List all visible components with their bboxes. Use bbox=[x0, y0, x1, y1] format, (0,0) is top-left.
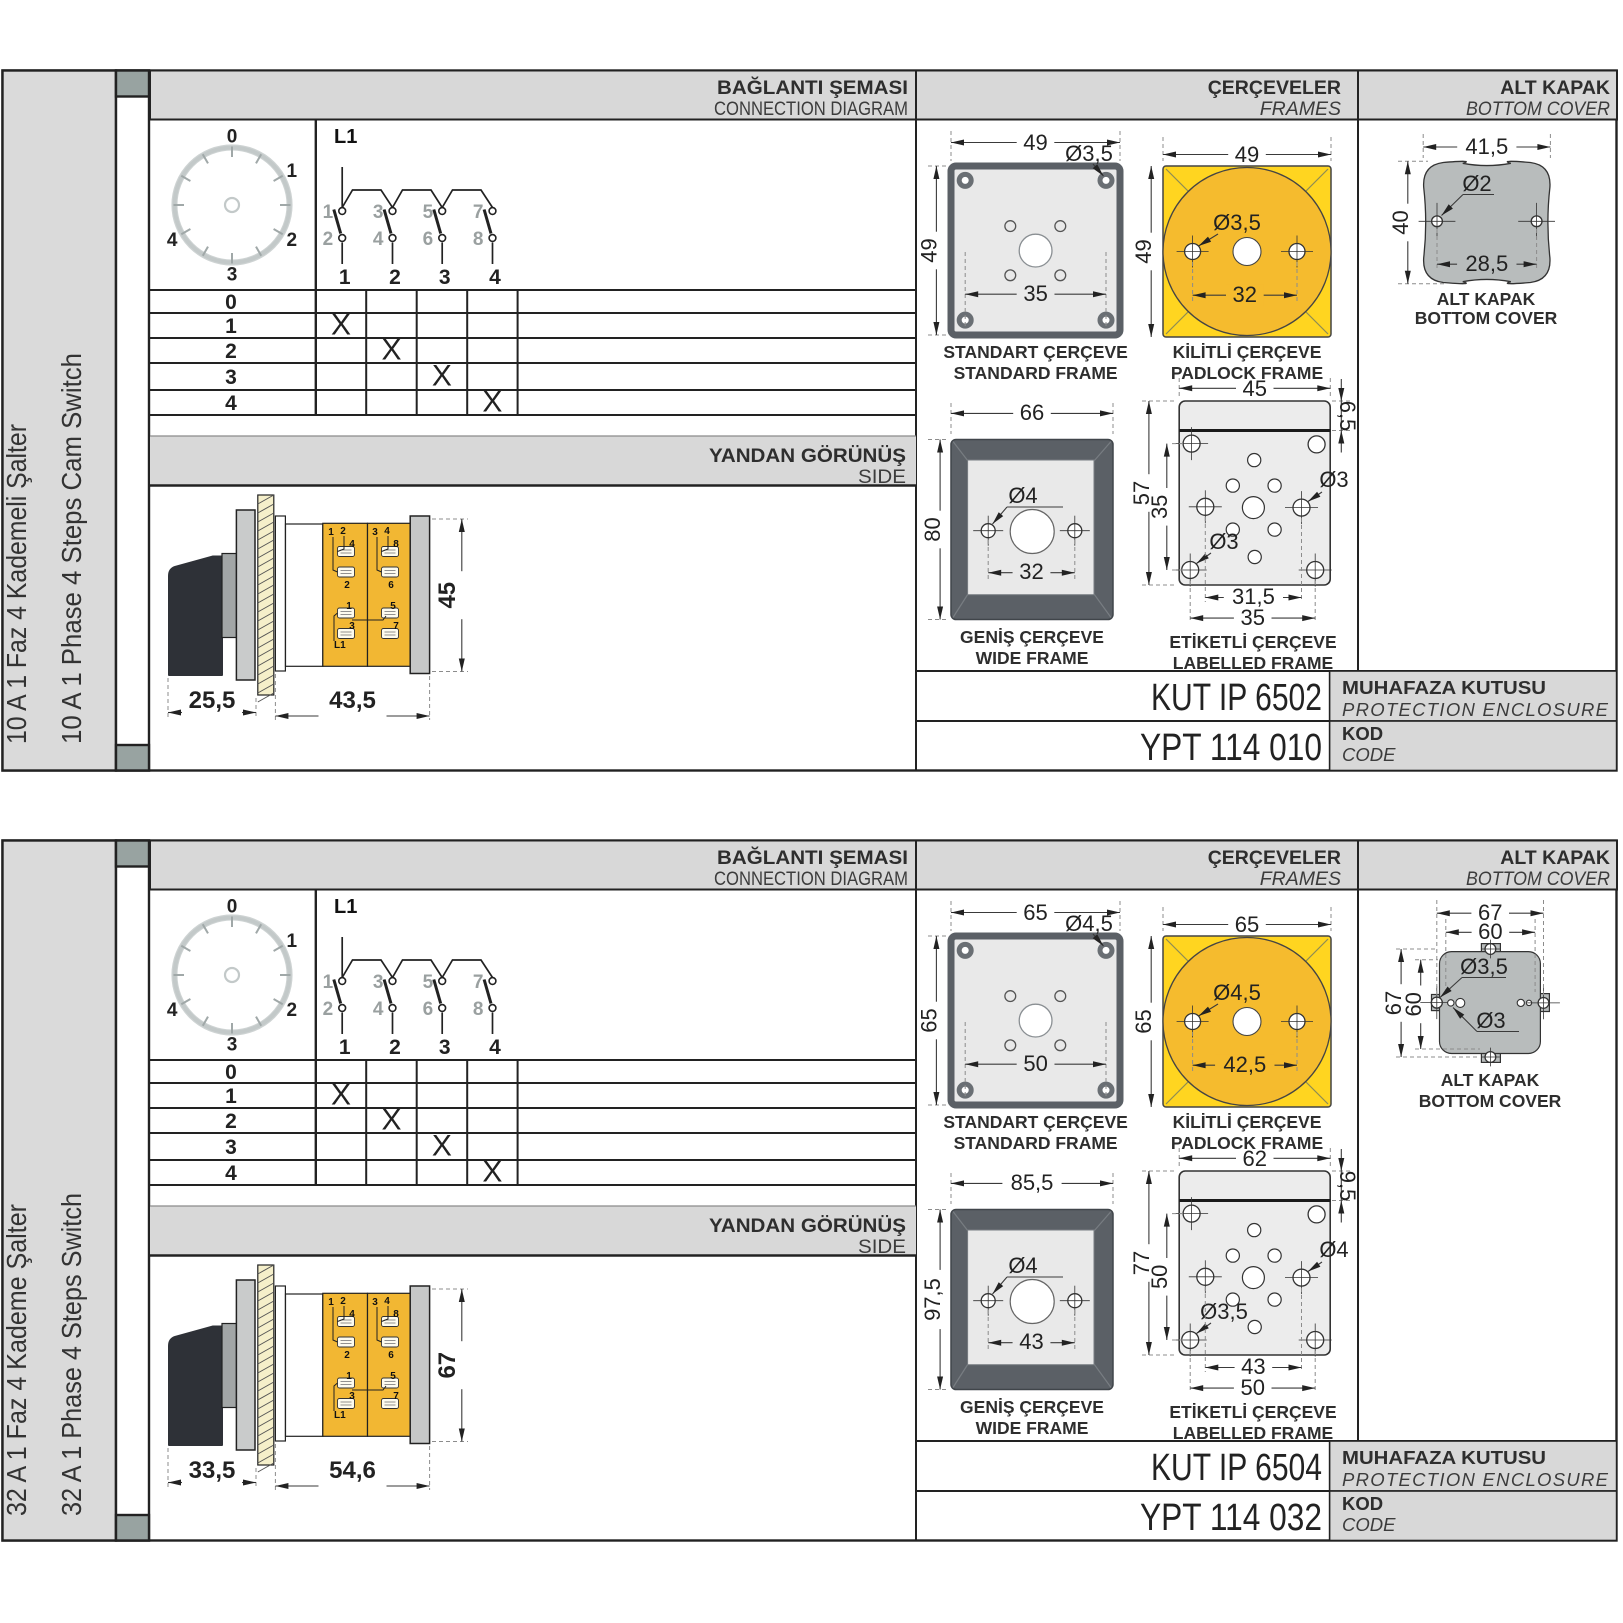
svg-text:1: 1 bbox=[339, 266, 351, 289]
svg-text:ALT KAPAK: ALT KAPAK bbox=[1437, 289, 1536, 309]
svg-text:35: 35 bbox=[1023, 281, 1047, 306]
svg-text:32: 32 bbox=[1233, 282, 1257, 307]
svg-text:6: 6 bbox=[388, 580, 394, 591]
svg-text:32 A 1 Faz 4 Kademe Şalter: 32 A 1 Faz 4 Kademe Şalter bbox=[1, 1204, 32, 1516]
svg-text:4: 4 bbox=[384, 1296, 390, 1307]
svg-text:85,5: 85,5 bbox=[1011, 1170, 1054, 1195]
svg-text:MUHAFAZA KUTUSU: MUHAFAZA KUTUSU bbox=[1342, 1447, 1546, 1468]
svg-text:KOD: KOD bbox=[1342, 723, 1383, 744]
svg-text:4: 4 bbox=[167, 1000, 178, 1021]
svg-text:WIDE FRAME: WIDE FRAME bbox=[976, 1418, 1089, 1438]
svg-text:4: 4 bbox=[349, 539, 355, 550]
svg-text:X: X bbox=[331, 1079, 351, 1112]
svg-text:YPT 114 032: YPT 114 032 bbox=[1140, 1497, 1322, 1539]
svg-text:7: 7 bbox=[473, 972, 484, 993]
svg-text:35: 35 bbox=[1240, 605, 1264, 630]
svg-text:54,6: 54,6 bbox=[329, 1457, 376, 1484]
svg-text:45: 45 bbox=[1243, 376, 1267, 401]
svg-text:2: 2 bbox=[287, 230, 298, 251]
svg-text:STANDARD FRAME: STANDARD FRAME bbox=[954, 1133, 1118, 1153]
svg-text:L1: L1 bbox=[334, 896, 357, 918]
svg-text:3: 3 bbox=[439, 266, 451, 289]
svg-text:4: 4 bbox=[373, 999, 384, 1020]
svg-text:7: 7 bbox=[473, 202, 484, 223]
svg-text:1: 1 bbox=[323, 972, 334, 993]
svg-text:5: 5 bbox=[423, 972, 434, 993]
svg-text:ETİKETLİ ÇERÇEVE: ETİKETLİ ÇERÇEVE bbox=[1169, 1402, 1336, 1422]
svg-text:Ø4,5: Ø4,5 bbox=[1213, 980, 1261, 1005]
svg-text:X: X bbox=[482, 386, 502, 419]
svg-text:4: 4 bbox=[225, 1162, 237, 1185]
svg-text:WIDE FRAME: WIDE FRAME bbox=[976, 648, 1089, 668]
svg-text:5: 5 bbox=[390, 1371, 396, 1382]
svg-text:2: 2 bbox=[340, 526, 346, 537]
svg-text:GENİŞ ÇERÇEVE: GENİŞ ÇERÇEVE bbox=[960, 627, 1104, 647]
svg-text:33,5: 33,5 bbox=[189, 1457, 236, 1484]
svg-text:BOTTOM COVER: BOTTOM COVER bbox=[1415, 308, 1558, 328]
svg-text:X: X bbox=[331, 309, 351, 342]
svg-text:1: 1 bbox=[225, 315, 237, 338]
svg-text:50: 50 bbox=[1240, 1375, 1264, 1400]
svg-text:PROTECTION ENCLOSURE: PROTECTION ENCLOSURE bbox=[1342, 699, 1609, 720]
svg-text:1: 1 bbox=[323, 202, 334, 223]
svg-text:41,5: 41,5 bbox=[1465, 134, 1508, 159]
svg-text:L1: L1 bbox=[334, 640, 346, 651]
svg-text:STANDARD FRAME: STANDARD FRAME bbox=[954, 363, 1118, 383]
svg-text:Ø4: Ø4 bbox=[1319, 1237, 1348, 1262]
svg-text:6,5: 6,5 bbox=[1335, 401, 1360, 432]
svg-text:5: 5 bbox=[423, 202, 434, 223]
svg-text:BOTTOM COVER: BOTTOM COVER bbox=[1466, 98, 1610, 120]
svg-text:25,5: 25,5 bbox=[189, 687, 236, 714]
svg-text:4: 4 bbox=[489, 266, 501, 289]
svg-text:CONNECTION DIAGRAM: CONNECTION DIAGRAM bbox=[714, 868, 908, 890]
svg-text:49: 49 bbox=[1023, 130, 1047, 155]
svg-text:3: 3 bbox=[372, 1297, 378, 1308]
svg-text:4: 4 bbox=[225, 392, 237, 415]
svg-text:KİLİTLİ ÇERÇEVE: KİLİTLİ ÇERÇEVE bbox=[1173, 342, 1322, 362]
svg-text:0: 0 bbox=[225, 291, 237, 314]
svg-text:35: 35 bbox=[1147, 495, 1172, 519]
svg-text:5: 5 bbox=[390, 601, 396, 612]
svg-text:Ø4,5: Ø4,5 bbox=[1065, 911, 1113, 936]
svg-text:3: 3 bbox=[373, 202, 384, 223]
svg-text:0: 0 bbox=[225, 1061, 237, 1084]
svg-text:65: 65 bbox=[1131, 1009, 1156, 1033]
svg-text:3: 3 bbox=[349, 1391, 355, 1402]
svg-text:2: 2 bbox=[344, 1350, 350, 1361]
svg-text:X: X bbox=[482, 1156, 502, 1189]
svg-text:8: 8 bbox=[473, 229, 484, 250]
svg-text:Ø2: Ø2 bbox=[1462, 171, 1491, 196]
svg-text:1: 1 bbox=[328, 527, 334, 538]
svg-text:YANDAN GÖRÜNÜŞ: YANDAN GÖRÜNÜŞ bbox=[709, 1214, 906, 1237]
svg-text:2: 2 bbox=[340, 1296, 346, 1307]
svg-text:60: 60 bbox=[1478, 919, 1502, 944]
svg-text:Ø3,5: Ø3,5 bbox=[1065, 141, 1113, 166]
svg-text:3: 3 bbox=[372, 527, 378, 538]
svg-text:65: 65 bbox=[916, 1008, 941, 1032]
svg-text:MUHAFAZA KUTUSU: MUHAFAZA KUTUSU bbox=[1342, 677, 1546, 698]
svg-text:FRAMES: FRAMES bbox=[1260, 98, 1341, 120]
svg-text:2: 2 bbox=[344, 580, 350, 591]
svg-text:67: 67 bbox=[434, 1352, 461, 1379]
svg-text:49: 49 bbox=[1235, 142, 1259, 167]
svg-text:2: 2 bbox=[287, 1000, 298, 1021]
svg-text:X: X bbox=[381, 334, 401, 367]
svg-text:X: X bbox=[381, 1104, 401, 1137]
svg-text:ALT KAPAK: ALT KAPAK bbox=[1500, 847, 1610, 869]
svg-text:4: 4 bbox=[373, 229, 384, 250]
svg-text:ÇERÇEVELER: ÇERÇEVELER bbox=[1208, 77, 1341, 99]
svg-text:1: 1 bbox=[287, 931, 298, 952]
svg-text:ÇERÇEVELER: ÇERÇEVELER bbox=[1208, 847, 1341, 869]
svg-text:STANDART ÇERÇEVE: STANDART ÇERÇEVE bbox=[943, 342, 1127, 362]
svg-text:KİLİTLİ ÇERÇEVE: KİLİTLİ ÇERÇEVE bbox=[1173, 1112, 1322, 1132]
svg-text:Ø3: Ø3 bbox=[1319, 467, 1348, 492]
svg-text:8: 8 bbox=[393, 539, 399, 550]
svg-text:3: 3 bbox=[439, 1036, 451, 1059]
svg-text:49: 49 bbox=[1131, 239, 1156, 263]
svg-text:1: 1 bbox=[287, 161, 298, 182]
svg-text:32 A 1 Phase 4 Steps Switch: 32 A 1 Phase 4 Steps Switch bbox=[56, 1193, 87, 1516]
svg-text:4: 4 bbox=[489, 1036, 501, 1059]
svg-text:28,5: 28,5 bbox=[1465, 251, 1508, 276]
svg-text:10 A 1 Phase 4 Steps Cam Switc: 10 A 1 Phase 4 Steps Cam Switch bbox=[56, 353, 87, 744]
svg-text:8: 8 bbox=[393, 1309, 399, 1320]
svg-text:L1: L1 bbox=[334, 1410, 346, 1421]
svg-text:6: 6 bbox=[423, 999, 434, 1020]
svg-text:X: X bbox=[432, 1130, 452, 1163]
svg-text:YPT 114 010: YPT 114 010 bbox=[1140, 727, 1322, 769]
svg-text:6: 6 bbox=[388, 1350, 394, 1361]
svg-text:1: 1 bbox=[225, 1085, 237, 1108]
svg-text:9,5: 9,5 bbox=[1335, 1171, 1360, 1202]
svg-text:2: 2 bbox=[323, 229, 334, 250]
svg-text:CODE: CODE bbox=[1342, 1514, 1396, 1535]
svg-text:SIDE: SIDE bbox=[858, 1236, 906, 1258]
svg-text:0: 0 bbox=[227, 127, 238, 148]
svg-text:KUT IP 6504: KUT IP 6504 bbox=[1151, 1447, 1322, 1489]
svg-text:3: 3 bbox=[227, 1035, 238, 1056]
svg-text:4: 4 bbox=[384, 526, 390, 537]
svg-text:7: 7 bbox=[393, 1391, 399, 1402]
svg-text:97,5: 97,5 bbox=[920, 1278, 945, 1321]
svg-text:6: 6 bbox=[423, 229, 434, 250]
svg-text:2: 2 bbox=[225, 340, 237, 363]
svg-text:CODE: CODE bbox=[1342, 744, 1396, 765]
svg-text:FRAMES: FRAMES bbox=[1260, 868, 1341, 890]
svg-text:65: 65 bbox=[1235, 912, 1259, 937]
svg-text:43,5: 43,5 bbox=[329, 687, 376, 714]
svg-text:L1: L1 bbox=[334, 126, 357, 148]
svg-text:3: 3 bbox=[373, 972, 384, 993]
svg-text:GENİŞ ÇERÇEVE: GENİŞ ÇERÇEVE bbox=[960, 1397, 1104, 1417]
svg-text:2: 2 bbox=[389, 1036, 401, 1059]
svg-text:42,5: 42,5 bbox=[1223, 1052, 1266, 1077]
svg-text:Ø3,5: Ø3,5 bbox=[1200, 1299, 1248, 1324]
svg-text:Ø4: Ø4 bbox=[1008, 1253, 1037, 1278]
svg-text:62: 62 bbox=[1243, 1146, 1267, 1171]
svg-text:ALT KAPAK: ALT KAPAK bbox=[1441, 1070, 1540, 1090]
svg-text:3: 3 bbox=[225, 366, 237, 389]
svg-text:50: 50 bbox=[1023, 1051, 1047, 1076]
svg-text:45: 45 bbox=[434, 582, 461, 609]
svg-text:1: 1 bbox=[339, 1036, 351, 1059]
svg-text:BOTTOM COVER: BOTTOM COVER bbox=[1466, 868, 1610, 890]
svg-text:KUT IP 6502: KUT IP 6502 bbox=[1151, 677, 1322, 719]
svg-text:BAĞLANTI ŞEMASI: BAĞLANTI ŞEMASI bbox=[717, 846, 908, 869]
svg-text:Ø3,5: Ø3,5 bbox=[1460, 954, 1508, 979]
svg-text:4: 4 bbox=[349, 1309, 355, 1320]
svg-text:43: 43 bbox=[1019, 1329, 1043, 1354]
svg-text:1: 1 bbox=[346, 1371, 352, 1382]
svg-text:1: 1 bbox=[328, 1297, 334, 1308]
svg-text:SIDE: SIDE bbox=[858, 466, 906, 488]
svg-text:8: 8 bbox=[473, 999, 484, 1020]
svg-text:50: 50 bbox=[1147, 1265, 1172, 1289]
svg-text:60: 60 bbox=[1401, 992, 1426, 1016]
svg-text:40: 40 bbox=[1388, 210, 1413, 234]
svg-text:PROTECTION ENCLOSURE: PROTECTION ENCLOSURE bbox=[1342, 1469, 1609, 1490]
svg-text:3: 3 bbox=[225, 1136, 237, 1159]
svg-text:65: 65 bbox=[1023, 900, 1047, 925]
svg-text:YANDAN GÖRÜNÜŞ: YANDAN GÖRÜNÜŞ bbox=[709, 444, 906, 467]
svg-text:X: X bbox=[432, 360, 452, 393]
svg-text:1: 1 bbox=[346, 601, 352, 612]
svg-text:Ø4: Ø4 bbox=[1008, 483, 1037, 508]
svg-text:7: 7 bbox=[393, 621, 399, 632]
svg-text:32: 32 bbox=[1019, 559, 1043, 584]
svg-text:66: 66 bbox=[1020, 400, 1044, 425]
svg-text:STANDART ÇERÇEVE: STANDART ÇERÇEVE bbox=[943, 1112, 1127, 1132]
svg-text:2: 2 bbox=[225, 1110, 237, 1133]
svg-text:ETİKETLİ ÇERÇEVE: ETİKETLİ ÇERÇEVE bbox=[1169, 632, 1336, 652]
svg-text:2: 2 bbox=[389, 266, 401, 289]
svg-text:Ø3: Ø3 bbox=[1209, 529, 1238, 554]
svg-text:2: 2 bbox=[323, 999, 334, 1020]
svg-text:KOD: KOD bbox=[1342, 1493, 1383, 1514]
svg-text:ALT KAPAK: ALT KAPAK bbox=[1500, 77, 1610, 99]
svg-text:Ø3,5: Ø3,5 bbox=[1213, 210, 1261, 235]
svg-text:3: 3 bbox=[227, 265, 238, 286]
svg-text:BOTTOM COVER: BOTTOM COVER bbox=[1419, 1091, 1562, 1111]
svg-text:10 A 1 Faz 4 Kademeli Şalter: 10 A 1 Faz 4 Kademeli Şalter bbox=[1, 424, 32, 744]
svg-text:3: 3 bbox=[349, 621, 355, 632]
svg-text:Ø3: Ø3 bbox=[1476, 1008, 1505, 1033]
svg-text:4: 4 bbox=[167, 230, 178, 251]
svg-text:80: 80 bbox=[920, 517, 945, 541]
svg-text:BAĞLANTI ŞEMASI: BAĞLANTI ŞEMASI bbox=[717, 76, 908, 99]
svg-text:49: 49 bbox=[916, 238, 941, 262]
svg-text:CONNECTION DIAGRAM: CONNECTION DIAGRAM bbox=[714, 98, 908, 120]
svg-text:0: 0 bbox=[227, 897, 238, 918]
